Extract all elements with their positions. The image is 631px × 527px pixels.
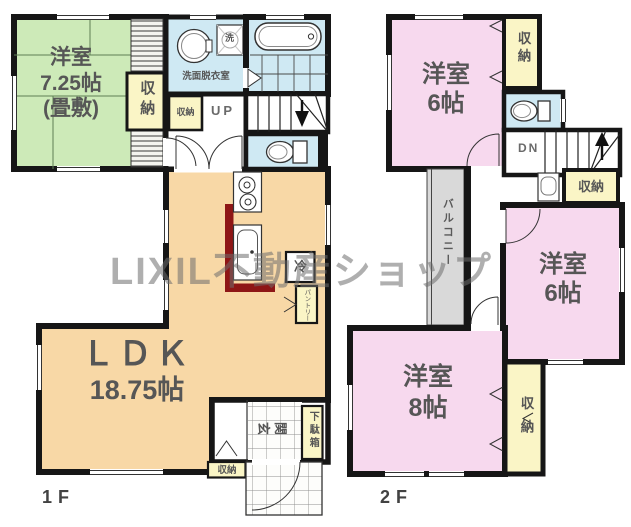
closet-hall-1f-label: 収納 xyxy=(169,107,202,118)
closet-tatami-label: 収納 xyxy=(137,80,155,120)
ldk-door-gap xyxy=(174,166,242,173)
bedroom-south-label: 洋室 8帖 xyxy=(352,362,504,423)
staircase-up xyxy=(246,94,328,132)
south-door-gap xyxy=(471,322,500,331)
closet-hall-2f-label: 収納 xyxy=(564,179,618,195)
stove-icon xyxy=(234,172,262,212)
floor-2f-label: 2F xyxy=(380,487,413,508)
closet-south-label: 収納 xyxy=(517,396,533,443)
washbasin-icon-2f xyxy=(538,173,559,201)
washroom-label: 洗面脱衣室 xyxy=(167,71,245,83)
floor-plan: 洋室 7.25帖 (畳敷) 収納 洗面脱衣室 洗 収納 UP ＬＤＫ 18.75… xyxy=(0,0,631,527)
ldk-label: ＬＤＫ 18.75帖 xyxy=(52,334,222,407)
stairs-down-label: DN xyxy=(518,141,539,156)
watermark: LIXIL不動産ショップ xyxy=(110,240,493,295)
toilet-icon-1f xyxy=(267,141,308,163)
wall-patch xyxy=(318,130,328,171)
washer-label: 洗 xyxy=(225,33,234,44)
tatami-door-gap xyxy=(163,138,170,166)
closet-north-label: 収納 xyxy=(514,31,530,66)
north-door-gap xyxy=(466,166,502,173)
entrance-label: 玄関 xyxy=(256,421,290,440)
bathtub-icon xyxy=(255,23,321,50)
closet-entrance-label: 収納 xyxy=(208,465,246,477)
shoe-box-label: 下駄箱 xyxy=(306,411,318,450)
toilet-icon-2f xyxy=(511,101,550,121)
tatami-room-label: 洋室 7.25帖 (畳敷) xyxy=(14,45,128,122)
stairs-up-label: UP xyxy=(211,103,235,119)
bedroom-east-label: 洋室 6帖 xyxy=(505,250,621,309)
entrance-porch xyxy=(246,459,322,515)
bedroom-north-label: 洋室 6帖 xyxy=(391,60,501,119)
floor-1f-label: 1F xyxy=(42,487,75,508)
